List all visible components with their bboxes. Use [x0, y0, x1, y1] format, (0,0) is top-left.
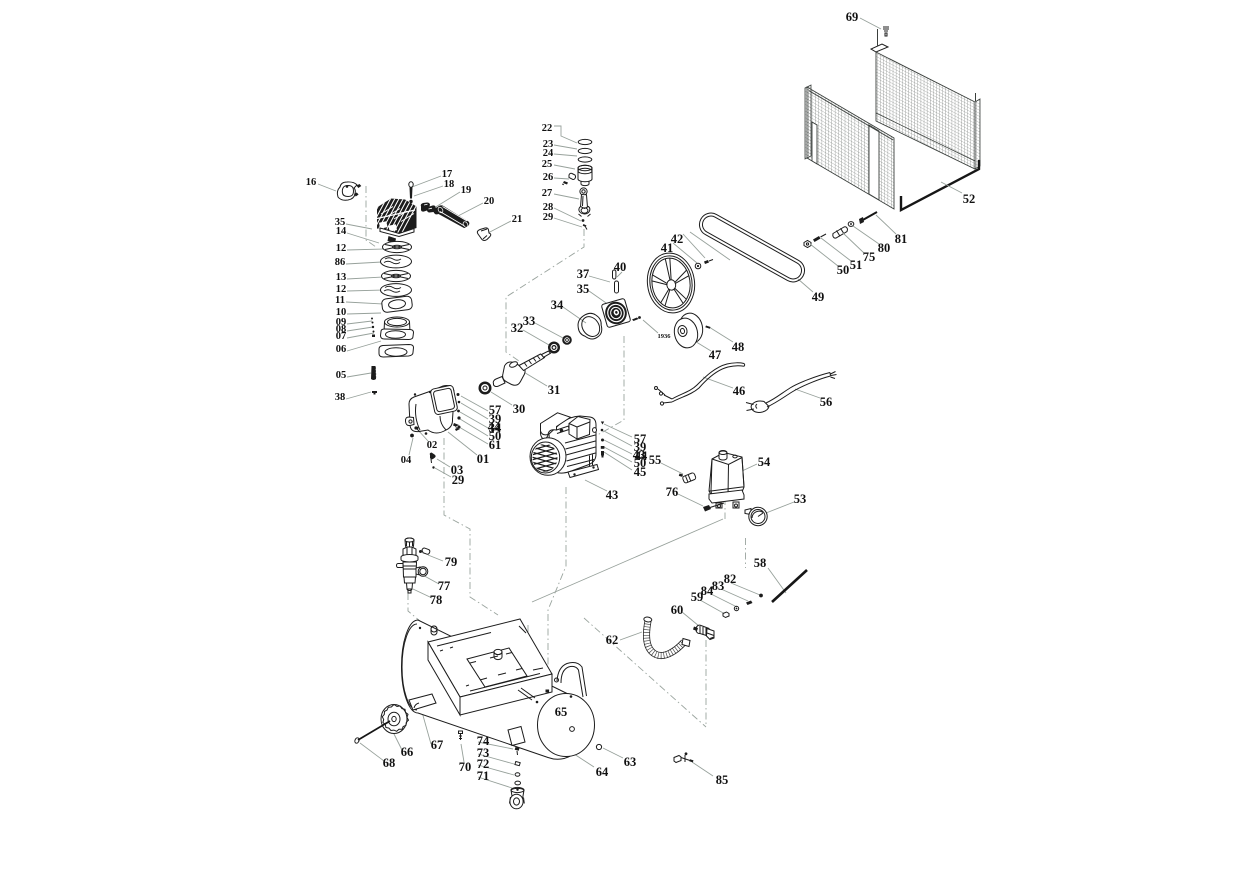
svg-text:25: 25 — [542, 159, 553, 170]
svg-text:40: 40 — [614, 260, 627, 274]
svg-text:38: 38 — [335, 392, 346, 403]
svg-text:71: 71 — [477, 769, 490, 783]
svg-text:61: 61 — [489, 438, 502, 452]
svg-text:24: 24 — [543, 148, 554, 159]
svg-text:82: 82 — [724, 572, 737, 586]
svg-text:13: 13 — [336, 272, 347, 283]
svg-text:56: 56 — [820, 395, 833, 409]
svg-text:26: 26 — [543, 172, 554, 183]
svg-text:65: 65 — [555, 705, 568, 719]
svg-text:62: 62 — [606, 633, 619, 647]
svg-text:46: 46 — [733, 384, 746, 398]
svg-text:43: 43 — [606, 488, 619, 502]
svg-text:29: 29 — [543, 212, 554, 223]
svg-text:01: 01 — [477, 452, 490, 466]
svg-text:07: 07 — [336, 331, 347, 342]
svg-text:51: 51 — [850, 258, 863, 272]
svg-text:35: 35 — [577, 282, 590, 296]
svg-text:34: 34 — [551, 298, 564, 312]
svg-text:64: 64 — [596, 765, 609, 779]
svg-text:50: 50 — [837, 263, 850, 277]
svg-text:75: 75 — [863, 250, 876, 264]
svg-text:22: 22 — [542, 123, 553, 134]
svg-text:41: 41 — [661, 241, 674, 255]
svg-text:66: 66 — [401, 745, 414, 759]
svg-text:53: 53 — [794, 492, 807, 506]
svg-text:14: 14 — [336, 226, 347, 237]
svg-text:16: 16 — [306, 177, 317, 188]
svg-text:21: 21 — [512, 214, 523, 225]
svg-text:32: 32 — [511, 321, 524, 335]
svg-text:49: 49 — [812, 290, 825, 304]
svg-text:37: 37 — [577, 267, 590, 281]
svg-text:78: 78 — [430, 593, 443, 607]
svg-text:06: 06 — [336, 344, 347, 355]
svg-text:81: 81 — [895, 232, 908, 246]
svg-text:12: 12 — [336, 284, 347, 295]
svg-text:58: 58 — [754, 556, 767, 570]
svg-text:30: 30 — [513, 402, 526, 416]
svg-text:68: 68 — [383, 756, 396, 770]
svg-text:11: 11 — [335, 295, 345, 306]
svg-text:79: 79 — [445, 555, 458, 569]
svg-text:76: 76 — [666, 485, 679, 499]
svg-text:86: 86 — [335, 257, 346, 268]
svg-text:63: 63 — [624, 755, 637, 769]
svg-text:60: 60 — [671, 603, 684, 617]
svg-text:47: 47 — [709, 348, 722, 362]
svg-text:45: 45 — [634, 465, 647, 479]
svg-text:54: 54 — [758, 455, 771, 469]
svg-text:05: 05 — [336, 370, 347, 381]
svg-text:1936: 1936 — [658, 333, 672, 340]
svg-text:02: 02 — [427, 440, 438, 451]
svg-text:31: 31 — [548, 383, 561, 397]
svg-text:55: 55 — [649, 453, 662, 467]
svg-text:19: 19 — [461, 185, 472, 196]
svg-text:59: 59 — [691, 590, 704, 604]
svg-text:85: 85 — [716, 773, 729, 787]
svg-text:48: 48 — [732, 340, 745, 354]
svg-text:67: 67 — [431, 738, 444, 752]
svg-text:83: 83 — [712, 579, 725, 593]
svg-text:33: 33 — [523, 314, 536, 328]
svg-text:52: 52 — [963, 192, 976, 206]
svg-text:20: 20 — [484, 196, 495, 207]
svg-text:12: 12 — [336, 243, 347, 254]
svg-text:77: 77 — [438, 579, 451, 593]
svg-text:69: 69 — [846, 10, 859, 24]
svg-text:80: 80 — [878, 241, 891, 255]
svg-text:29: 29 — [452, 473, 465, 487]
svg-text:18: 18 — [444, 179, 455, 190]
svg-text:27: 27 — [542, 188, 553, 199]
svg-text:04: 04 — [401, 455, 412, 466]
svg-text:70: 70 — [459, 760, 472, 774]
